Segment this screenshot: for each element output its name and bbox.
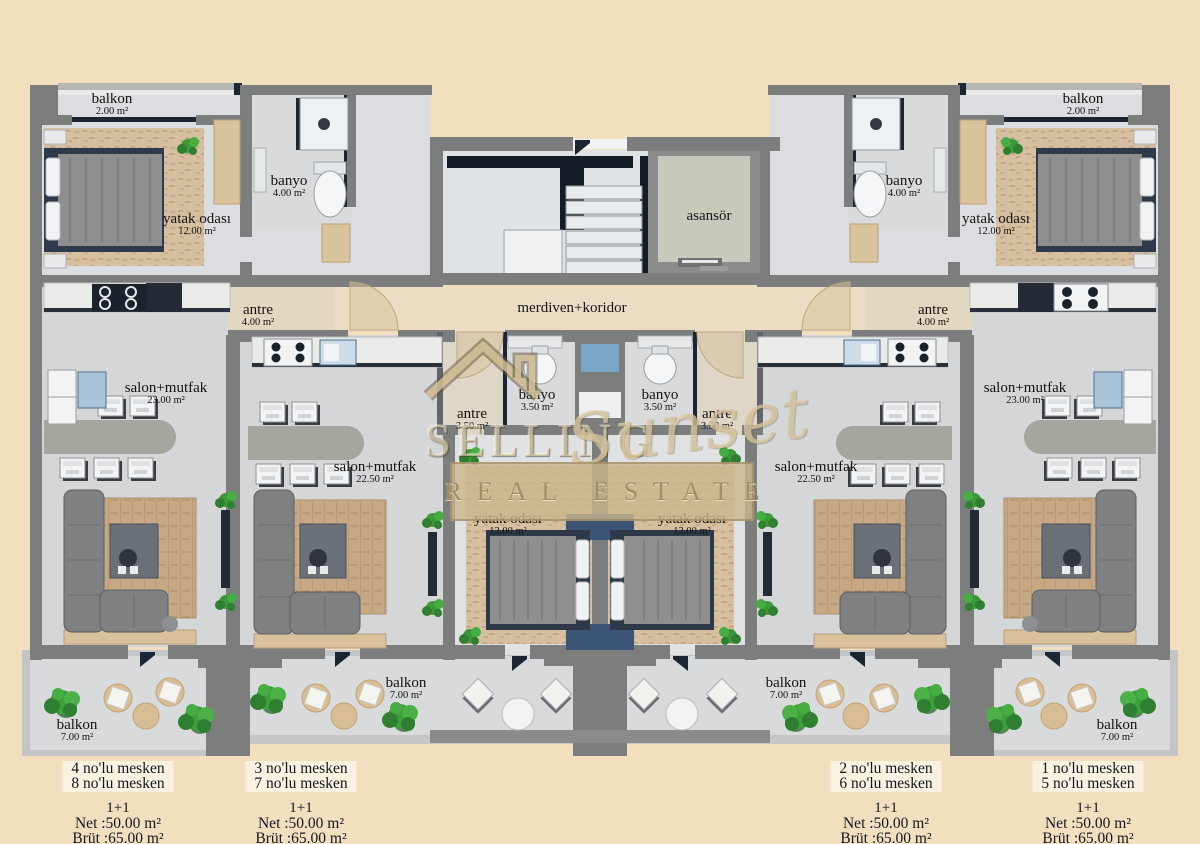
room-label-antre-inner-left: antre3.50 m² (456, 407, 488, 433)
room-label-banyo-inner-right: banyo3.50 m² (642, 388, 679, 414)
room-label-balkon-bottom-inner-left: balkon7.00 m² (386, 676, 427, 702)
room-label-balkon-bottom-right: balkon7.00 m² (1097, 718, 1138, 744)
stairs-icon (443, 150, 650, 285)
room-label-balkon-bottom-left: balkon7.00 m² (57, 718, 98, 744)
room-label-banyo-left: banyo4.00 m² (271, 174, 308, 200)
room-label-salon-outer-left: salon+mutfak23.00 m² (125, 381, 208, 407)
room-label-yatak-odasi-left: yatak odası12.00 m² (163, 212, 231, 238)
elevator-label: asansör (687, 208, 732, 225)
floor-plan-page: balkon2.00 m² banyo4.00 m² yatak odası12… (0, 0, 1200, 844)
corridor-label: merdiven+koridor (517, 300, 626, 317)
room-label-antre-inner-right: antre3.50 m² (701, 407, 733, 433)
room-label-balkon-top-right: balkon2.00 m² (1063, 92, 1104, 118)
room-label-balkon-bottom-inner-right: balkon7.00 m² (766, 676, 807, 702)
stove-icon (1054, 284, 1108, 311)
room-label-salon-outer-right: salon+mutfak23.00 m² (984, 381, 1067, 407)
floor-plan-svg (0, 0, 1200, 844)
unit-info-2-6: 2 no'lu mesken 6 no'lu mesken 1+1 Net :5… (830, 761, 941, 844)
unit-info-4-8: 4 no'lu mesken 8 no'lu mesken 1+1 Net :5… (62, 761, 173, 844)
room-label-salon-inner-left: salon+mutfak22.50 m² (334, 460, 417, 486)
room-label-yatak-center-right: yatak odası13.00 m² (658, 512, 726, 538)
room-label-antre-right: antre4.00 m² (917, 303, 949, 329)
room-label-banyo-right: banyo4.00 m² (886, 174, 923, 200)
unit-info-1-5: 1 no'lu mesken 5 no'lu mesken 1+1 Net :5… (1032, 761, 1143, 844)
room-label-salon-inner-right: salon+mutfak22.50 m² (775, 460, 858, 486)
room-label-yatak-odasi-right: yatak odası12.00 m² (962, 212, 1030, 238)
room-label-balkon-top-left: balkon2.00 m² (92, 92, 133, 118)
room-label-banyo-inner-left: banyo3.50 m² (519, 388, 556, 414)
unit-info-3-7: 3 no'lu mesken 7 no'lu mesken 1+1 Net :5… (245, 761, 356, 844)
room-label-yatak-center-left: yatak odası13.00 m² (474, 512, 542, 538)
room-label-antre-left: antre4.00 m² (242, 303, 274, 329)
